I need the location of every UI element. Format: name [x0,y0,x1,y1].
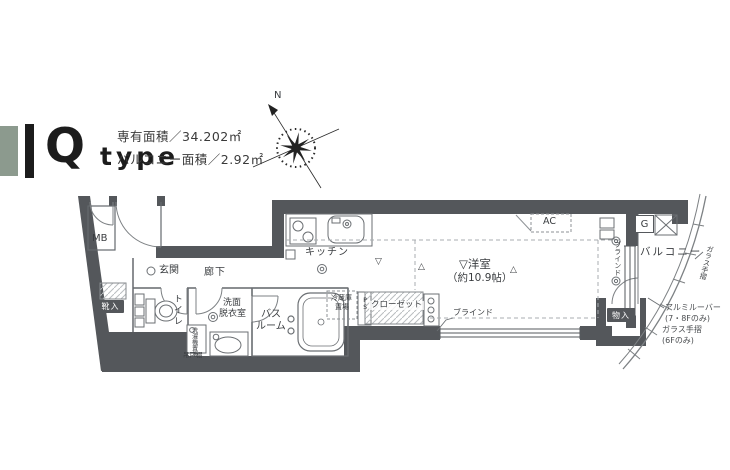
label-washroom-1: 洗面 [223,299,241,309]
entrance-door-arc [116,202,161,247]
label-ac: AC [543,217,556,227]
label-bath-1: バス [261,309,281,320]
label-genkan: 玄関 [159,265,179,276]
toilet-tank [146,299,155,323]
finish-mark-up: △ [418,263,425,273]
label-corridor: 廊下 [204,267,226,278]
label-bath-2: ルーム [256,321,286,332]
compass-icon [253,104,339,188]
label-hanging-cupboard: 吊戸棚 [183,352,203,359]
finish-mark-up-2: △ [510,266,517,276]
floorplan-drawing [0,0,730,470]
label-closet: クローゼット [369,301,424,310]
label-blind: ブラインド [453,309,493,318]
label-washroom-2: 脱衣室 [219,310,246,320]
label-western-room: ▽洋室 [459,258,491,271]
note-glass-rail-floor: (6Fのみ) [662,335,694,346]
exterior-walls [78,196,688,372]
label-mb: MB [92,233,108,244]
floorplan-page: Q type 専有面積／34.202㎡ バルコニー面積／2.92㎡ N [0,0,730,470]
label-shoe-storage: 靴入 [97,300,124,313]
control-panel [424,294,439,326]
label-western-room-size: （約10.9帖） [447,273,512,285]
label-storage: 物入 [607,308,635,322]
note-glass-rail: ガラス手摺 [662,324,702,335]
label-pipe-space: PS [361,297,368,311]
label-balcony: バルコニー [640,247,702,259]
label-fridge-1: 冷蔵庫 [331,295,352,303]
label-gas-meter: G [641,219,649,230]
shoe-cabinet [100,283,126,299]
label-kitchen: キッチン [305,247,349,258]
switch-box [286,250,295,259]
south-window [440,327,580,339]
compass-needle-tip [268,104,278,116]
label-toilet: トイレ [171,294,181,327]
label-fridge-2: 置場 [335,304,349,312]
partition-panel [655,215,677,235]
note-aluminum-louver: アルミルーバー [665,302,721,313]
note-aluminum-louver-floors: (7・8Fのみ) [665,313,710,324]
water-heater [600,218,614,239]
washbasin [210,332,248,356]
gas-meter-box: G [635,215,654,233]
label-blind-vertical: ブラインド [613,241,621,276]
finish-mark-down: ▽ [375,258,382,268]
